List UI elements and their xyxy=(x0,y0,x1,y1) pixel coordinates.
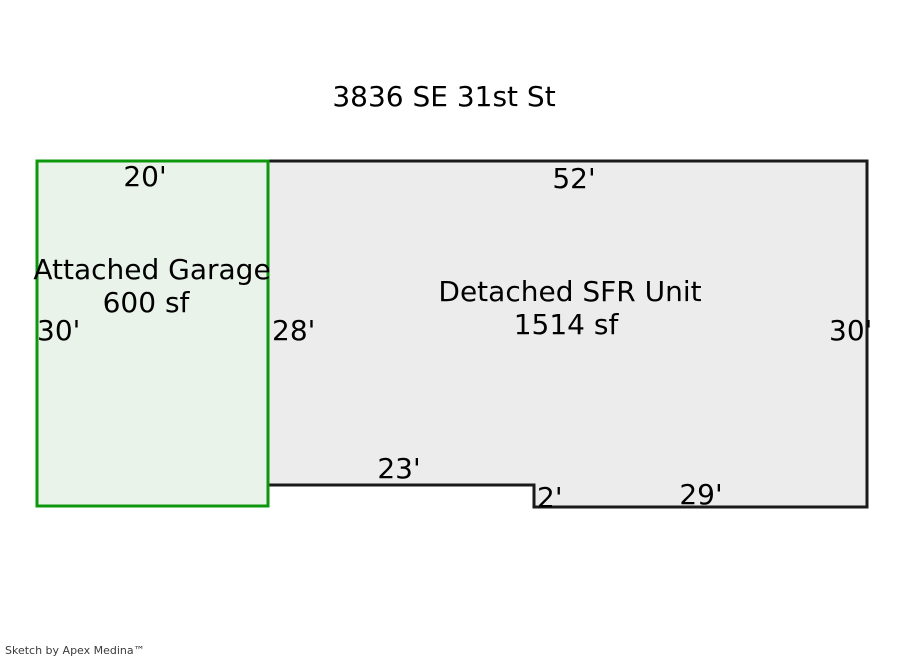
sfr-dim-right: 30' xyxy=(829,317,872,345)
garage-dim-right: 28' xyxy=(272,317,315,345)
sfr-dim-step: 2' xyxy=(537,484,563,512)
property-sketch: 3836 SE 31st St 20' Attached Garage 600 … xyxy=(0,0,900,660)
sfr-name: Detached SFR Unit xyxy=(438,278,701,306)
sketch-title: 3836 SE 31st St xyxy=(332,83,555,111)
sfr-area: 1514 sf xyxy=(514,311,619,339)
sfr-dim-bottom-right: 29' xyxy=(679,481,722,509)
garage-dim-left: 30' xyxy=(37,317,80,345)
garage-area: 600 sf xyxy=(103,289,190,317)
sfr-dim-bottom-left: 23' xyxy=(377,455,420,483)
garage-dim-top: 20' xyxy=(123,163,166,191)
sfr-dim-top: 52' xyxy=(552,165,595,193)
sketch-attribution: Sketch by Apex Medina™ xyxy=(5,644,145,657)
garage-name: Attached Garage xyxy=(33,256,270,284)
